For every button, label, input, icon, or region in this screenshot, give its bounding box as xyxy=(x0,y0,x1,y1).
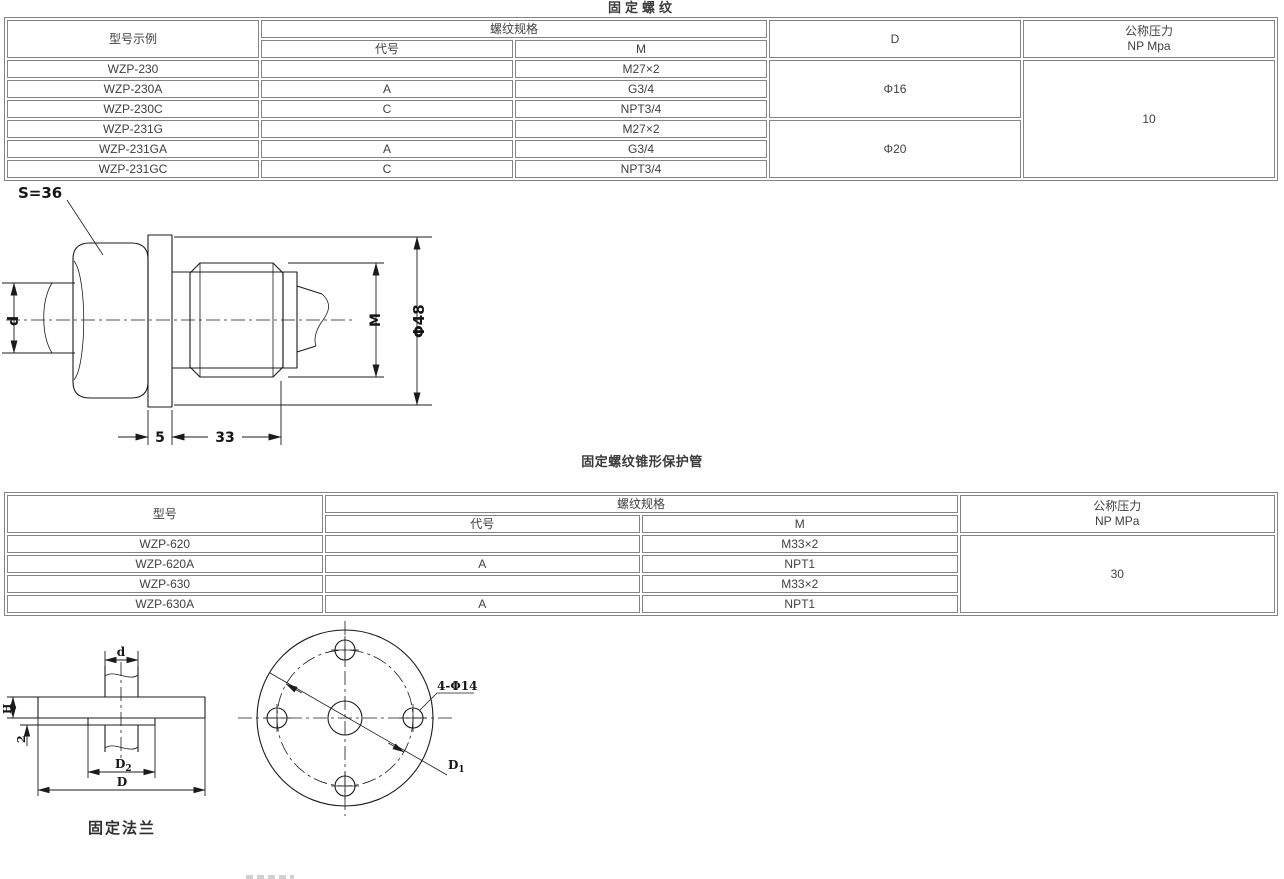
m-cell: G3/4 xyxy=(515,140,767,158)
two-dimension-label: 2 xyxy=(15,735,28,743)
table-row: WZP-620 M33×2 30 xyxy=(7,535,1275,553)
model-cell: WZP-620 xyxy=(7,535,323,553)
code-cell: A xyxy=(261,80,513,98)
dim5-label: 5 xyxy=(155,430,165,446)
col-header-pressure: 公称压力 NP Mpa xyxy=(1023,20,1275,58)
code-cell: C xyxy=(261,160,513,178)
d1-upper-arrow xyxy=(286,684,302,693)
d2-sub: 2 xyxy=(125,764,131,774)
pressure-value-cell: 30 xyxy=(960,535,1276,613)
col-header-thread-spec: 螺纹规格 xyxy=(325,495,958,513)
two-extension-lines xyxy=(20,718,88,725)
table-header-row: 型号示例 螺纹规格 D 公称压力 NP Mpa xyxy=(7,20,1275,38)
d1-main: D xyxy=(448,758,458,772)
col-header-m: M xyxy=(642,515,958,533)
code-cell xyxy=(325,535,641,553)
m-cell: G3/4 xyxy=(515,80,767,98)
model-cell: WZP-230 xyxy=(7,60,259,78)
col-header-code: 代号 xyxy=(325,515,641,533)
model-cell: WZP-231GA xyxy=(7,140,259,158)
tip-edges xyxy=(297,286,322,352)
d-dimension-label: d xyxy=(117,645,126,659)
d-value-cell: Φ20 xyxy=(769,120,1021,178)
col-header-model: 型号 xyxy=(7,495,323,533)
fixed-flange-side-view-drawing: d H 2 D2 D 固定法兰 xyxy=(0,638,230,843)
m-cell: M33×2 xyxy=(642,535,958,553)
d-outer-dimension-label: D xyxy=(117,775,127,789)
m-cell: NPT3/4 xyxy=(515,100,767,118)
pressure-value-cell: 10 xyxy=(1023,60,1275,178)
clipped-text-artifact xyxy=(246,875,294,879)
d2-dimension-label: D2 xyxy=(115,757,132,774)
s36-label: S=36 xyxy=(18,185,62,202)
m-cell: M33×2 xyxy=(642,575,958,593)
h-dimension-label: H xyxy=(1,704,14,714)
model-cell: WZP-230A xyxy=(7,80,259,98)
code-cell: C xyxy=(261,100,513,118)
flange-plate xyxy=(148,235,172,407)
stem-break-curve xyxy=(44,283,52,353)
d1-dimension-label: D1 xyxy=(448,758,465,775)
d2-main: D xyxy=(115,757,125,771)
flange-caption: 固定法兰 xyxy=(88,819,156,837)
conical-protection-tube-table: 型号 螺纹规格 公称压力 NP MPa 代号 M WZP-620 M33×2 3… xyxy=(4,492,1278,616)
flange-plate xyxy=(38,697,205,718)
d-dimension-label: d xyxy=(6,316,22,326)
model-cell: WZP-630A xyxy=(7,595,323,613)
table-header-row: 型号 螺纹规格 公称压力 NP MPa xyxy=(7,495,1275,513)
tube-bottom-edges xyxy=(105,725,138,752)
flange-boss xyxy=(88,718,155,725)
m-cell: NPT3/4 xyxy=(515,160,767,178)
model-cell: WZP-630 xyxy=(7,575,323,593)
col-header-thread-spec: 螺纹规格 xyxy=(261,20,767,38)
d-value-cell: Φ16 xyxy=(769,60,1021,118)
col-header-code: 代号 xyxy=(261,40,513,58)
dim33-label: 33 xyxy=(215,430,234,446)
code-cell: A xyxy=(261,140,513,158)
col-header-pressure: 公称压力 NP MPa xyxy=(960,495,1276,533)
m-dimension-label: M xyxy=(368,313,384,327)
code-cell xyxy=(261,120,513,138)
model-cell: WZP-620A xyxy=(7,555,323,573)
code-cell xyxy=(325,575,641,593)
hex-nut-outline xyxy=(73,243,148,398)
tube-bottom-break-curve xyxy=(105,746,138,749)
model-cell: WZP-230C xyxy=(7,100,259,118)
hex-face-arc xyxy=(74,261,84,380)
m-cell: M27×2 xyxy=(515,60,767,78)
pressure-label-unit: NP MPa xyxy=(961,514,1275,529)
d1-lower-arrow xyxy=(388,743,404,752)
phi48-dimension-label: Φ48 xyxy=(410,304,428,338)
tube-top-break-curve xyxy=(105,674,138,677)
holes-label: 4-Φ14 xyxy=(437,679,477,693)
pressure-label-unit: NP Mpa xyxy=(1024,39,1274,54)
pressure-label-cn: 公称压力 xyxy=(961,499,1275,514)
pressure-label-cn: 公称压力 xyxy=(1024,24,1274,39)
section1-title: 固定螺纹 xyxy=(0,0,1284,16)
table-row: WZP-230 M27×2 Φ16 10 xyxy=(7,60,1275,78)
col-header-d: D xyxy=(769,20,1021,58)
s36-leader-line xyxy=(67,200,103,255)
fixed-flange-front-view-drawing: D1 4-Φ14 xyxy=(236,618,488,826)
model-cell: WZP-231G xyxy=(7,120,259,138)
phi48-extension-lines xyxy=(174,237,432,405)
code-cell xyxy=(261,60,513,78)
m-cell: NPT1 xyxy=(642,555,958,573)
m-cell: NPT1 xyxy=(642,595,958,613)
col-header-m: M xyxy=(515,40,767,58)
d1-sub: 1 xyxy=(458,765,464,775)
model-cell: WZP-231GC xyxy=(7,160,259,178)
section2-title: 固定螺纹锥形保护管 xyxy=(0,451,1284,470)
tube-top-edges xyxy=(105,666,138,697)
m-cell: M27×2 xyxy=(515,120,767,138)
fixed-thread-technical-drawing: d M Φ48 5 33 S=36 xyxy=(0,185,460,455)
code-cell: A xyxy=(325,555,641,573)
col-header-model: 型号示例 xyxy=(7,20,259,58)
holes-leader-line xyxy=(420,693,474,710)
fixed-thread-table: 型号示例 螺纹规格 D 公称压力 NP Mpa 代号 M WZP-230 M27… xyxy=(4,17,1278,181)
code-cell: A xyxy=(325,595,641,613)
